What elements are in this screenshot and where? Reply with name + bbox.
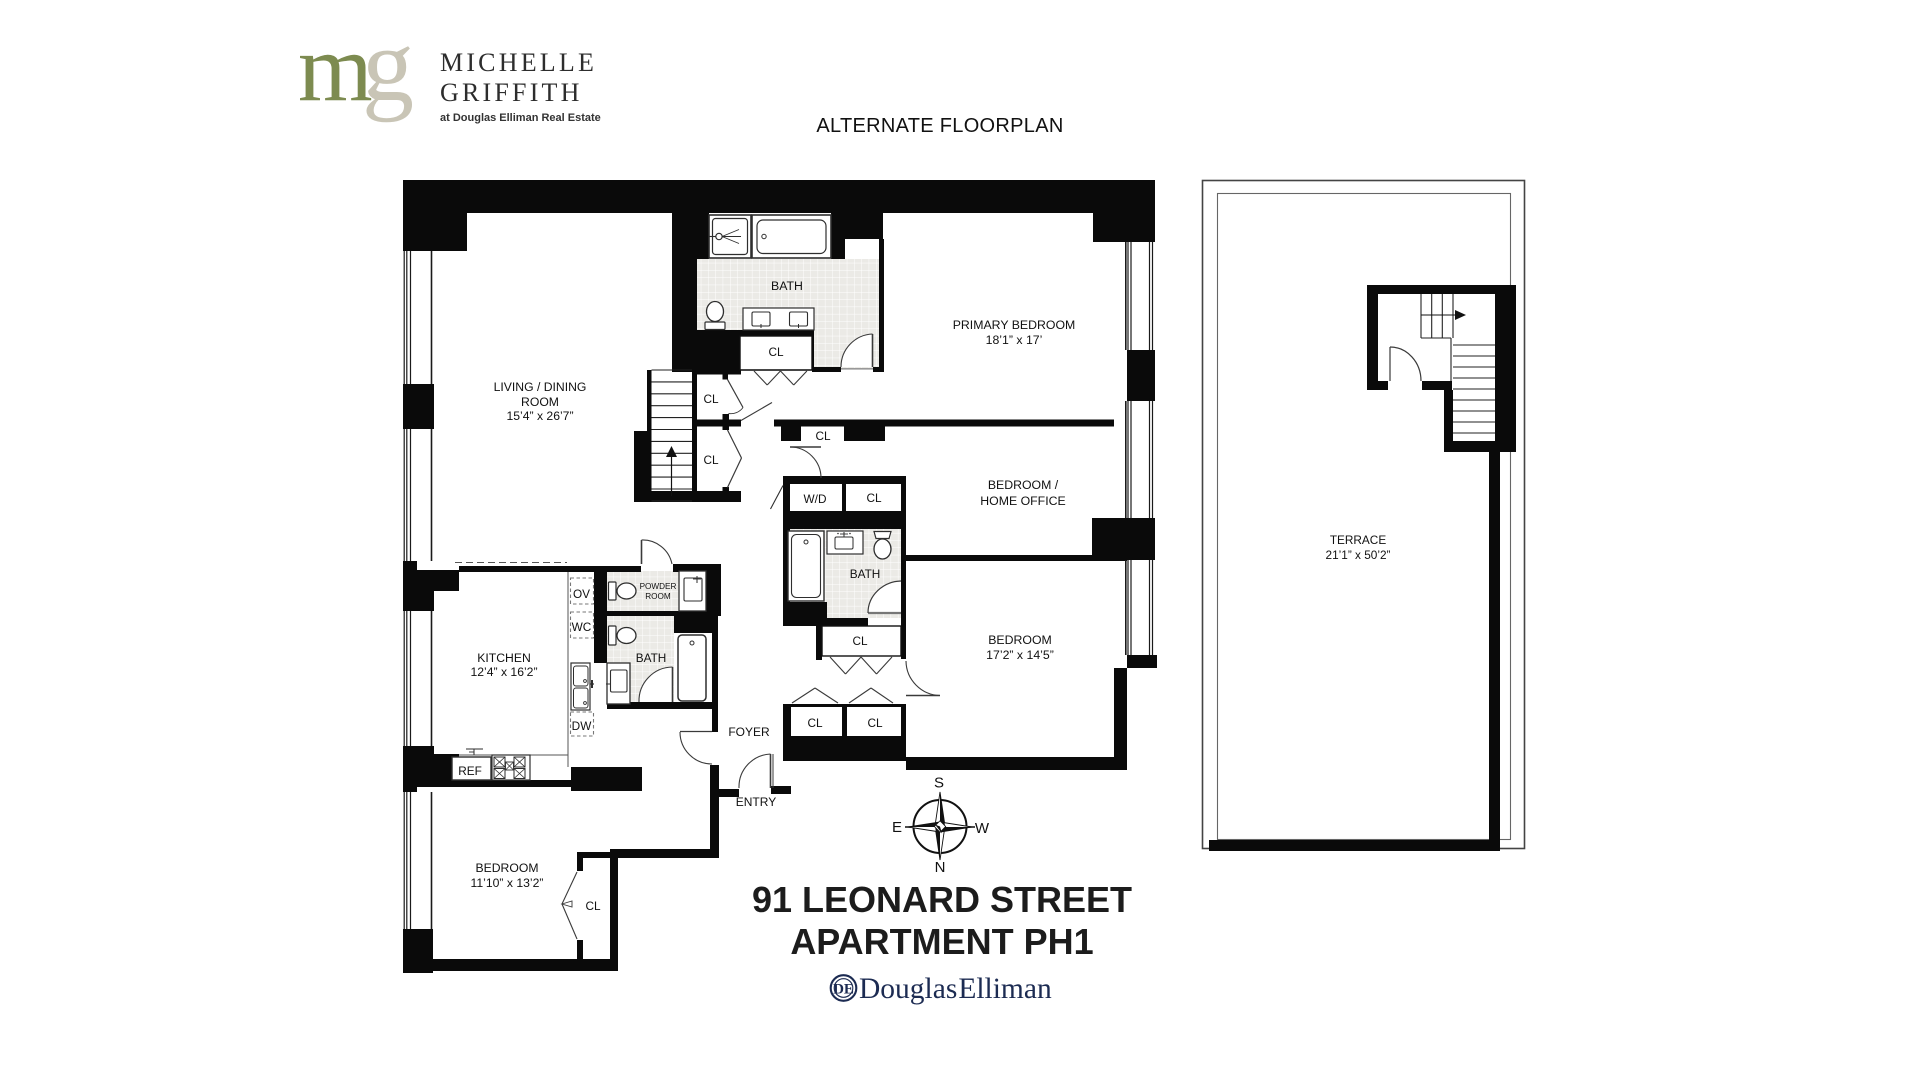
- svg-text:DouglasElliman: DouglasElliman: [859, 973, 1052, 1005]
- svg-text:15’4” x 26’7”: 15’4” x 26’7”: [506, 409, 573, 423]
- svg-text:CL: CL: [866, 491, 882, 505]
- svg-text:ALTERNATE FLOORPLAN: ALTERNATE FLOORPLAN: [816, 115, 1063, 137]
- svg-text:WC: WC: [572, 620, 592, 634]
- svg-text:BEDROOM: BEDROOM: [476, 861, 539, 875]
- svg-text:11’10” x 13’2”: 11’10” x 13’2”: [471, 876, 544, 890]
- svg-text:TERRACE: TERRACE: [1330, 533, 1387, 547]
- svg-text:g: g: [362, 8, 414, 123]
- svg-text:FOYER: FOYER: [728, 725, 770, 739]
- svg-text:ROOM: ROOM: [645, 592, 671, 601]
- svg-text:HOME OFFICE: HOME OFFICE: [980, 494, 1065, 508]
- svg-text:S: S: [934, 775, 944, 792]
- svg-text:APARTMENT PH1: APARTMENT PH1: [790, 921, 1093, 962]
- svg-text:CL: CL: [815, 429, 831, 443]
- svg-text:BATH: BATH: [771, 279, 803, 293]
- svg-text:BEDROOM: BEDROOM: [988, 633, 1052, 647]
- svg-text:GRIFFITH: GRIFFITH: [440, 78, 583, 107]
- svg-text:21’1” x 50’2”: 21’1” x 50’2”: [1326, 548, 1391, 562]
- svg-text:18’1” x 17’: 18’1” x 17’: [986, 333, 1043, 347]
- svg-text:CL: CL: [852, 634, 868, 648]
- svg-text:CL: CL: [867, 716, 883, 730]
- svg-text:BEDROOM /: BEDROOM /: [988, 478, 1059, 492]
- svg-text:PRIMARY BEDROOM: PRIMARY BEDROOM: [953, 318, 1076, 332]
- svg-text:W: W: [975, 820, 990, 837]
- svg-text:DE: DE: [833, 982, 854, 998]
- svg-text:ROOM: ROOM: [521, 395, 559, 409]
- svg-text:CL: CL: [585, 899, 601, 913]
- svg-text:CL: CL: [703, 392, 719, 406]
- svg-text:at Douglas Elliman Real Estate: at Douglas Elliman Real Estate: [440, 112, 601, 124]
- svg-text:ENTRY: ENTRY: [736, 795, 776, 809]
- svg-text:MICHELLE: MICHELLE: [440, 48, 597, 77]
- svg-text:KITCHEN: KITCHEN: [477, 651, 531, 665]
- svg-text:E: E: [892, 819, 902, 836]
- svg-text:CL: CL: [768, 345, 784, 359]
- svg-text:91 LEONARD STREET: 91 LEONARD STREET: [752, 879, 1132, 920]
- svg-text:POWDER: POWDER: [640, 582, 677, 591]
- svg-text:17’2” x 14’5”: 17’2” x 14’5”: [986, 648, 1054, 662]
- svg-text:BATH: BATH: [636, 651, 667, 665]
- svg-text:CL: CL: [807, 716, 823, 730]
- svg-text:N: N: [935, 859, 946, 876]
- svg-text:OV: OV: [573, 587, 590, 601]
- svg-text:CL: CL: [703, 453, 719, 467]
- svg-text:12’4” x 16’2”: 12’4” x 16’2”: [470, 665, 537, 679]
- svg-text:W/D: W/D: [804, 492, 827, 506]
- svg-text:REF: REF: [458, 764, 482, 778]
- svg-text:LIVING / DINING: LIVING / DINING: [494, 380, 587, 394]
- svg-text:DW: DW: [572, 719, 593, 733]
- svg-text:BATH: BATH: [850, 567, 881, 581]
